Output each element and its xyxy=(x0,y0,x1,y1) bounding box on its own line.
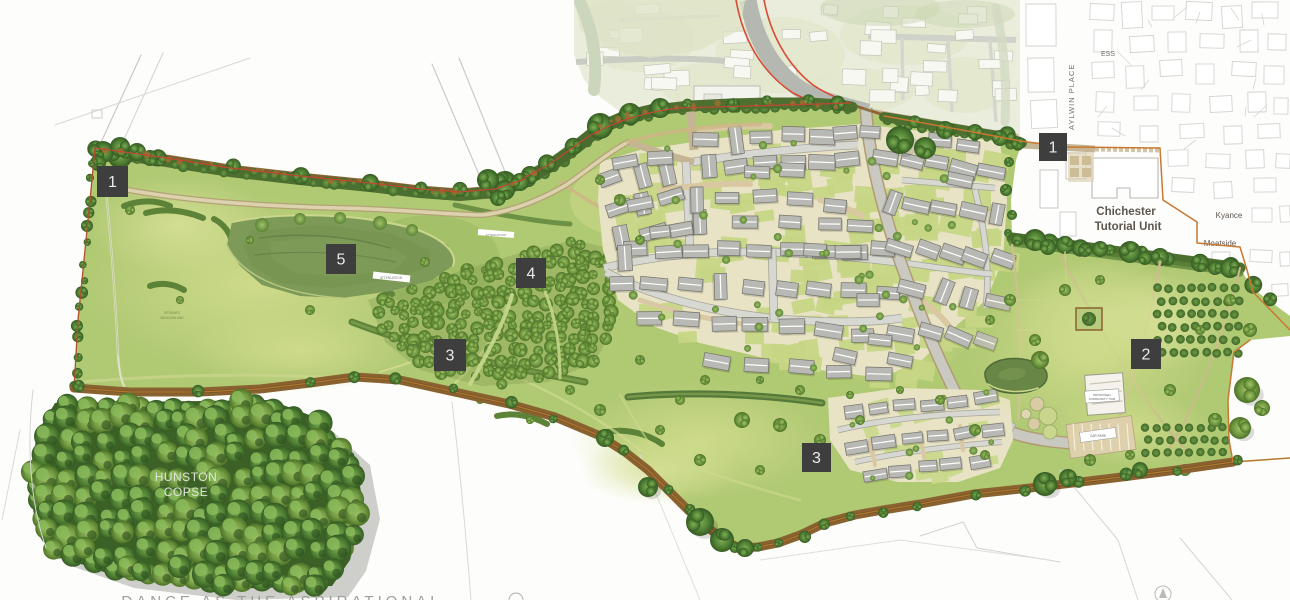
svg-text:ATTENUATION: ATTENUATION xyxy=(380,276,403,280)
svg-text:CAR PARK: CAR PARK xyxy=(1090,434,1107,438)
svg-text:ESS: ESS xyxy=(1101,51,1115,58)
svg-text:1: 1 xyxy=(108,174,117,191)
svg-text:COMMUNITY HUB: COMMUNITY HUB xyxy=(1089,397,1115,401)
svg-text:MEADOWLAND: MEADOWLAND xyxy=(160,316,184,320)
svg-text:HUNSTON: HUNSTON xyxy=(155,470,218,484)
svg-text:ATTENUATION: ATTENUATION xyxy=(486,233,507,237)
svg-text:Tutorial Unit: Tutorial Unit xyxy=(1095,221,1162,233)
svg-text:5: 5 xyxy=(337,252,346,269)
svg-text:4: 4 xyxy=(527,266,536,283)
svg-text:DANCE AS THE ASPIRATIONAL: DANCE AS THE ASPIRATIONAL xyxy=(121,593,442,600)
svg-text:AYLWIN PLACE: AYLWIN PLACE xyxy=(1067,64,1076,130)
svg-text:1: 1 xyxy=(1049,140,1058,157)
svg-text:Chichester: Chichester xyxy=(1096,206,1156,218)
svg-text:Kyance: Kyance xyxy=(1216,211,1243,220)
svg-text:2: 2 xyxy=(1142,347,1151,364)
svg-text:COPSE: COPSE xyxy=(164,485,209,499)
svg-text:RETAINED: RETAINED xyxy=(164,311,181,315)
svg-text:3: 3 xyxy=(812,450,821,467)
svg-text:3: 3 xyxy=(446,348,455,365)
